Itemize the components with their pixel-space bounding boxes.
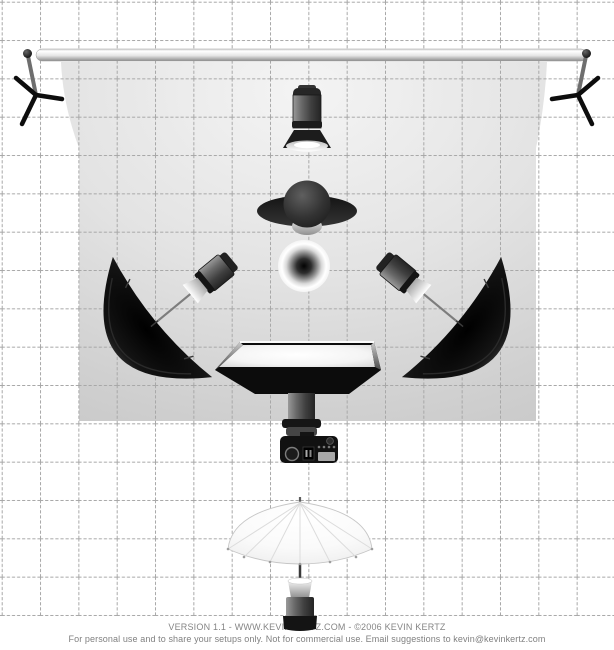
reflector-hotspot <box>294 142 320 148</box>
camera-lens-barrel <box>288 393 315 421</box>
strobe-collar <box>292 121 322 128</box>
stand-knob <box>23 49 32 58</box>
lighting-diagram: VERSION 1.1 - WWW.KEVINKERTZ.COM - ©2006… <box>0 0 614 650</box>
camera-dial <box>286 448 299 461</box>
lighting-diagram-canvas: VERSION 1.1 - WWW.KEVINKERTZ.COM - ©2006… <box>0 0 614 650</box>
stand-knob <box>582 49 591 58</box>
viewfinder-mark <box>306 450 308 457</box>
person-head <box>284 181 331 228</box>
camera-viewfinder <box>303 447 314 460</box>
backdrop-crossbar <box>36 49 587 61</box>
reflector-rim <box>288 578 312 584</box>
lens-hood-ring <box>282 419 321 428</box>
subject-sphere <box>278 240 330 292</box>
viewfinder-mark <box>310 450 312 457</box>
camera-lcd <box>318 452 335 461</box>
softbox-diffuser <box>219 345 375 367</box>
strobe-base-ring <box>283 616 317 631</box>
strobe-body <box>286 597 314 618</box>
camera-shutter-button <box>327 438 334 445</box>
credits-line2: For personal use and to share your setup… <box>69 634 546 644</box>
